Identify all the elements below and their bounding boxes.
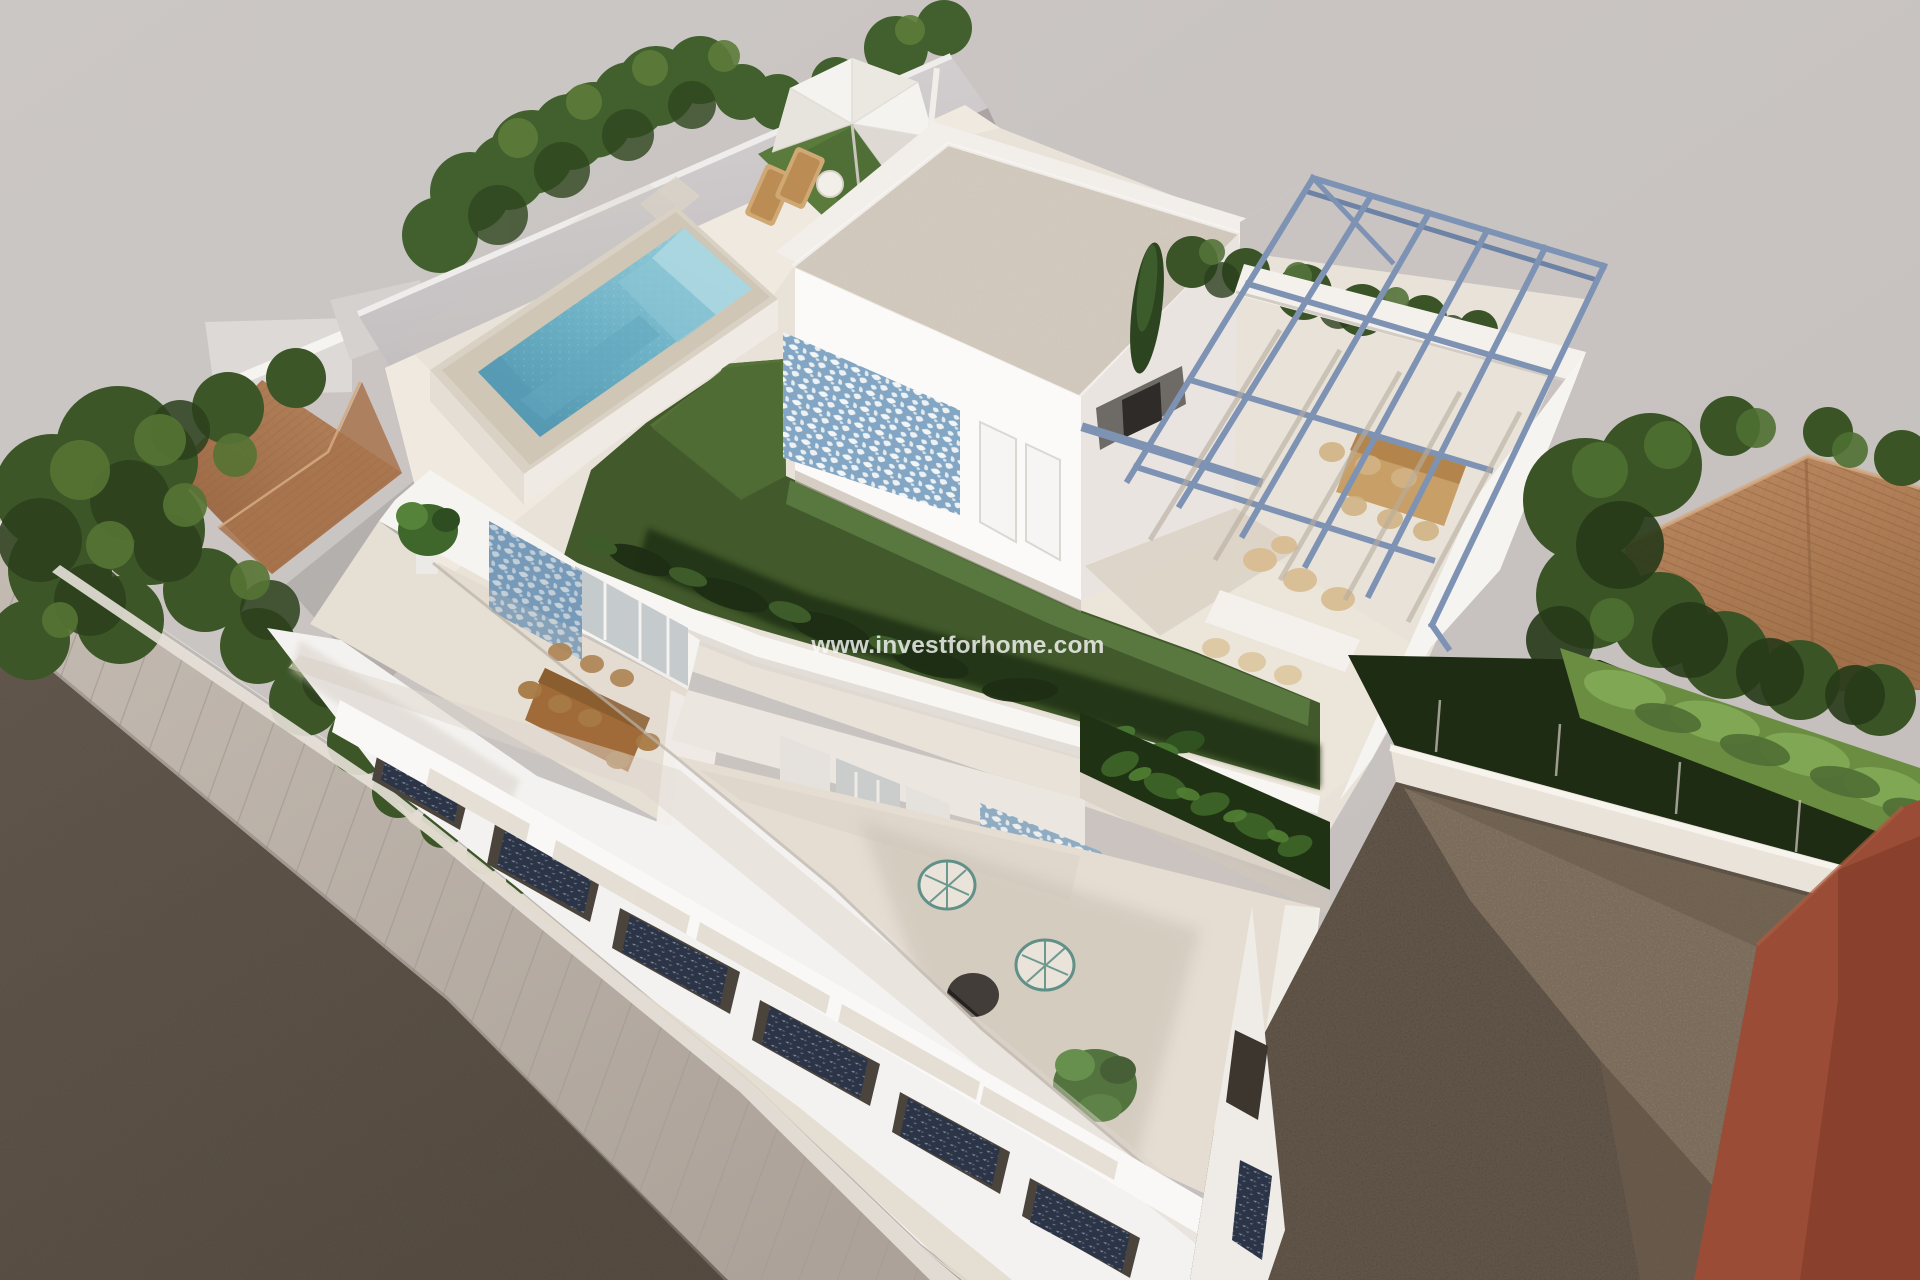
svg-text:www.investforhome.com: www.investforhome.com [810,632,1104,659]
